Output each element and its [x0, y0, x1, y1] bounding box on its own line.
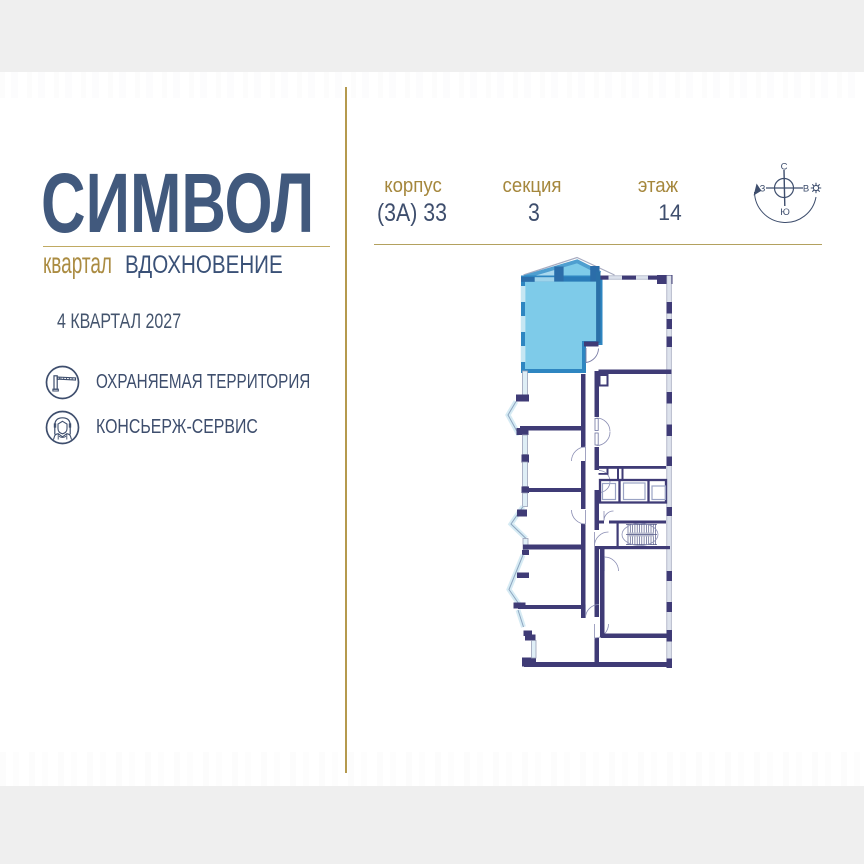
svg-text:В: В: [803, 184, 809, 195]
svg-text:Ю: Ю: [780, 207, 790, 218]
svg-text:З: З: [760, 184, 766, 195]
svg-text:С: С: [781, 162, 788, 173]
